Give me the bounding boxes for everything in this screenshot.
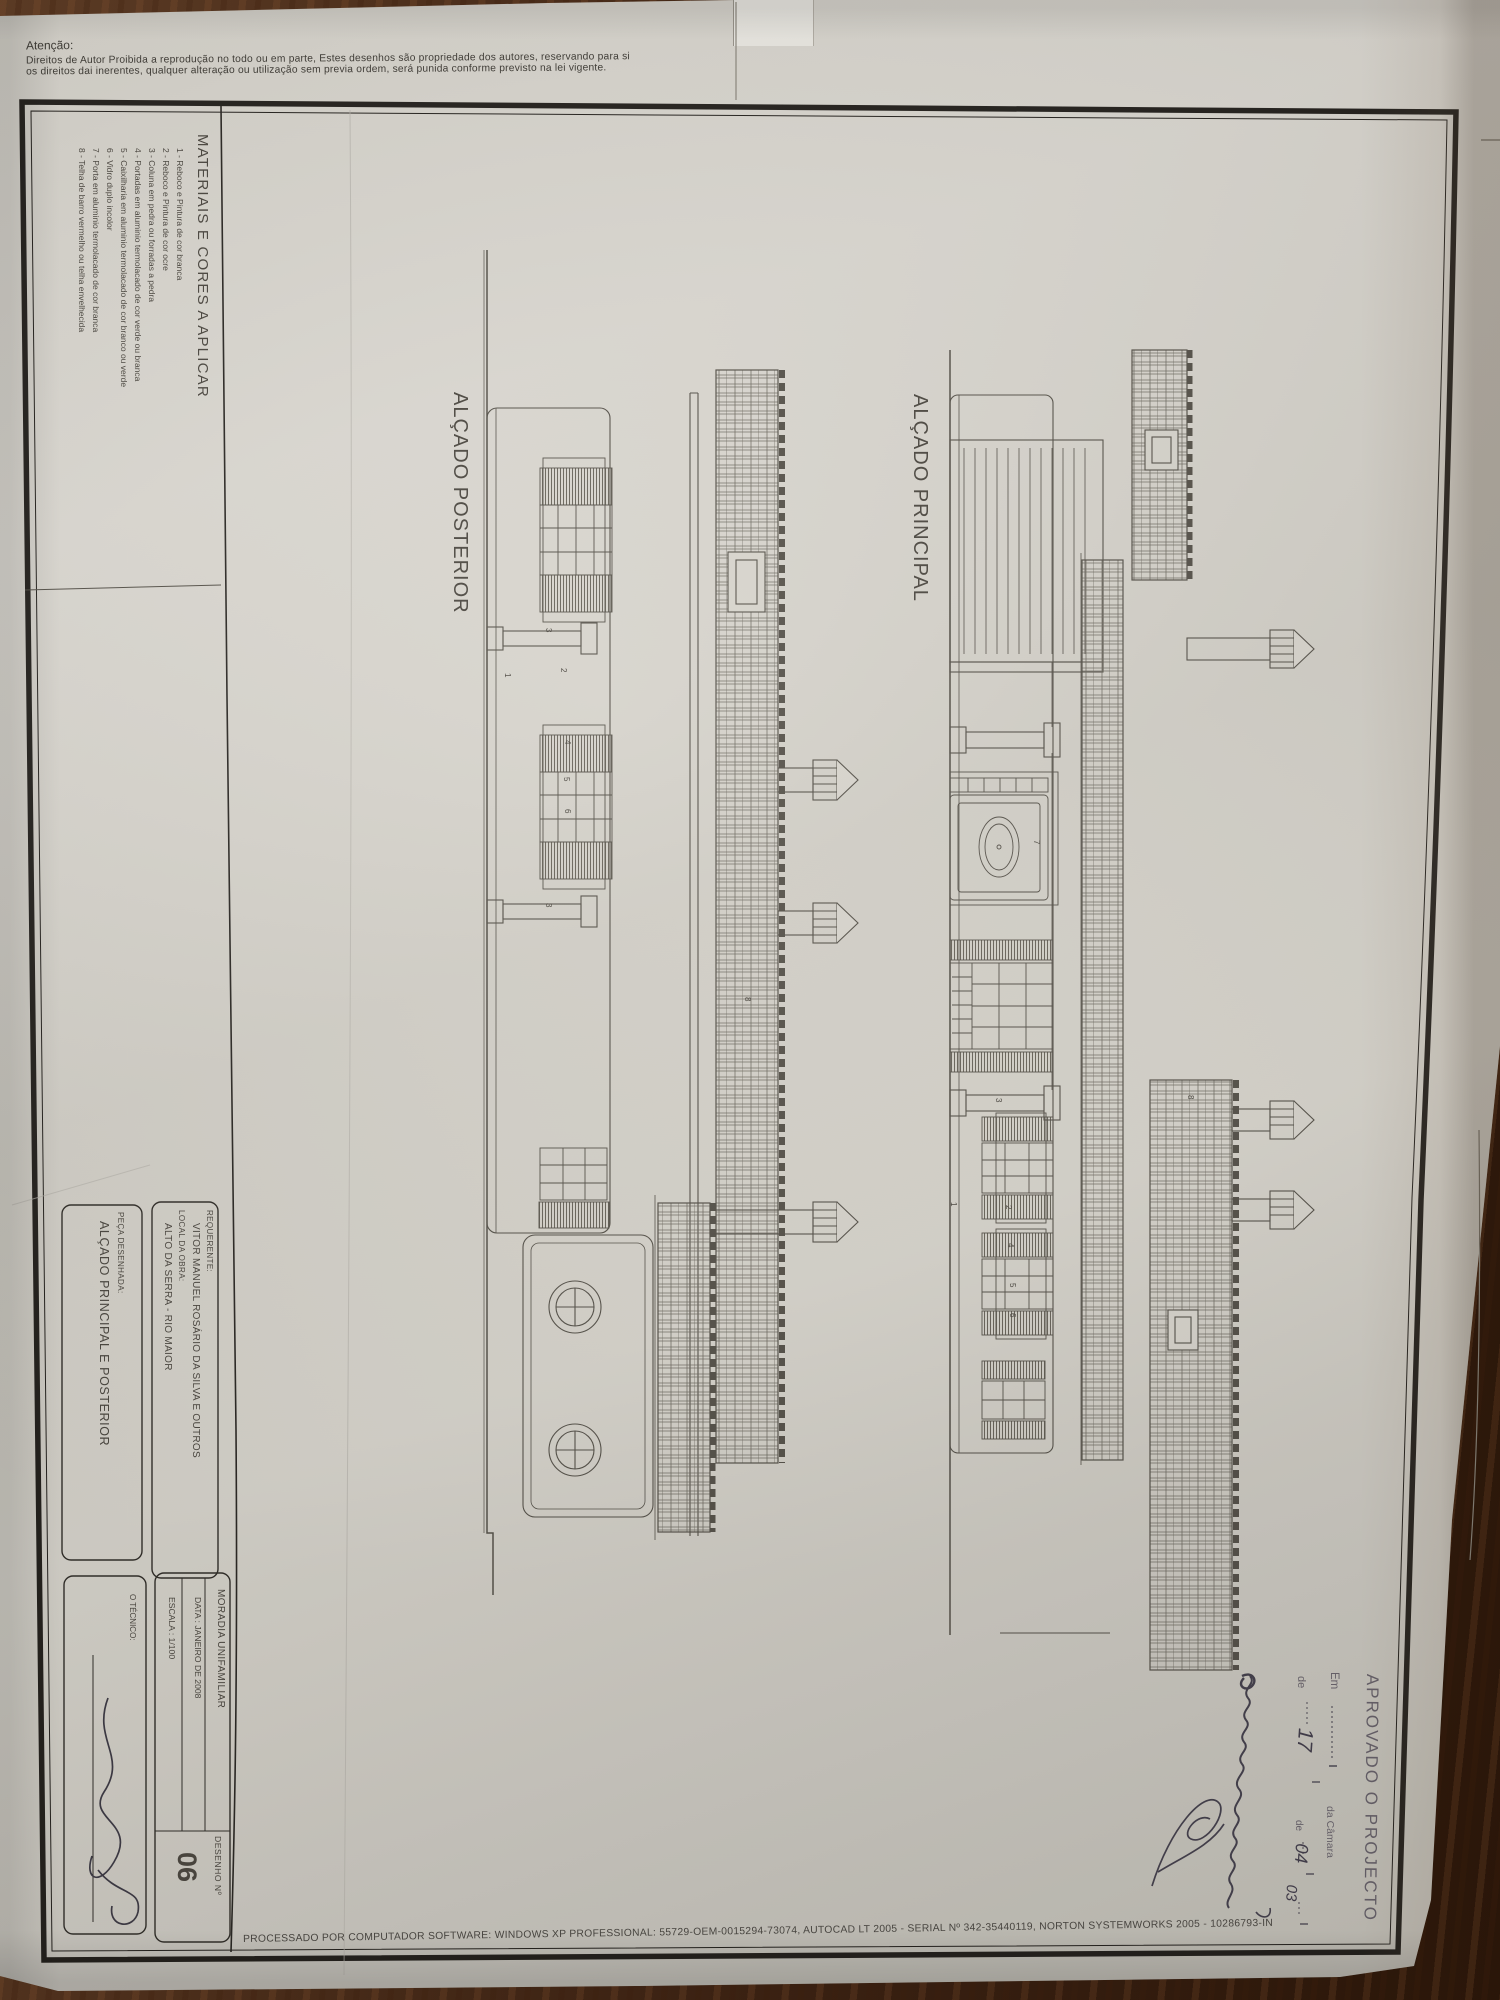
materials-item: 5 - Caixilharia em aluminio termolacado …: [117, 148, 131, 500]
callout: 4: [562, 740, 572, 752]
requerente-label: REQUERENTE:: [203, 1210, 215, 1572]
posterior-title: ALÇADO POSTERIOR: [437, 392, 471, 618]
materials-item: 2 - Reboco e Pintura de cor ocre: [159, 148, 173, 500]
stamp-year: 03: [1277, 1884, 1300, 1921]
titleblock-moradia: MORADIA UNIFAMILIAR: [208, 1589, 226, 1715]
local-value: ALTO DA SERRA - RIO MAIOR: [160, 1223, 175, 1572]
stamp-camara: da Câmara: [1322, 1806, 1336, 1880]
stamp-em: Em: [1325, 1672, 1340, 1704]
callout: 1: [948, 1202, 958, 1214]
titleblock-desenho-num: 06: [169, 1852, 202, 1902]
local-label: LOCAL DA OBRA:: [175, 1210, 188, 1572]
callout: 7: [1031, 840, 1041, 852]
requerente-value: VITOR MANUEL ROSÁRIO DA SILVA E OUTROS: [188, 1223, 203, 1572]
titleblock-data: DATA : JANEIRO DE 2008: [189, 1597, 203, 1719]
callout: 3: [543, 628, 553, 640]
materials-item: 3 - Coluna em pedra ou forradas a pedra: [145, 148, 159, 500]
peca-label: PEÇA DESENHADA:: [113, 1212, 127, 1512]
stamp-approved: APROVADO O PROJECTO: [1357, 1674, 1382, 1928]
stamp-day: 17: [1286, 1727, 1317, 1785]
approval-handwriting: [1152, 1675, 1337, 1924]
stamp-month: 04: [1285, 1843, 1312, 1886]
callout: 1: [502, 673, 512, 685]
materials-item: 6 - Vidro duplo incolor: [103, 148, 117, 500]
materials-legend: MATERIAIS E CORES A APLICAR 1 - Reboco e…: [55, 134, 211, 500]
materials-item: 4 - Portadas em aluminio termolacado de …: [131, 148, 145, 500]
peca-value: ALÇADO PRINCIPAL E POSTERIOR: [94, 1221, 113, 1512]
titleblock-desenho-label: DESENHO Nº: [210, 1836, 223, 1918]
callout: 3: [993, 1098, 1003, 1110]
callout: 3: [543, 903, 553, 915]
titleblock-escala: ESCALA : 1/100: [163, 1597, 177, 1689]
titleblock-requerente: REQUERENTE: VITOR MANUEL ROSÁRIO DA SILV…: [153, 1210, 215, 1572]
stamp-de2: de: [1291, 1820, 1304, 1844]
callout: 5: [561, 777, 571, 789]
principal-title: ALÇADO PRINCIPAL: [899, 394, 931, 620]
callout: 8: [1185, 1095, 1195, 1107]
materials-item: 8 - Telha de barro vermelho ou telha env…: [75, 148, 89, 500]
callout: 6: [562, 809, 572, 821]
callout: 2: [558, 668, 568, 680]
technician-signature: [90, 1698, 139, 1924]
callout: 4: [1005, 1243, 1015, 1255]
callout: 5: [1007, 1283, 1017, 1295]
materials-item: 7 - Porta em aluminio termolacado de cor…: [89, 148, 103, 500]
callout: 6: [1007, 1313, 1017, 1325]
callout: 2: [1003, 1205, 1013, 1217]
callout: 8: [742, 997, 752, 1009]
materials-title: MATERIAIS E CORES A APLICAR: [194, 134, 211, 500]
photo-of-architectural-drawing: Atenção: Direitos de Autor Proibida a re…: [0, 0, 1500, 2000]
copyright-notice: Atenção: Direitos de Autor Proibida a re…: [26, 34, 726, 78]
titleblock-tecnico-label: O TÉCNICO:: [125, 1594, 137, 1656]
titleblock-peca: PEÇA DESENHADA: ALÇADO PRINCIPAL E POSTE…: [79, 1212, 127, 1512]
stamp-de1: de: [1293, 1676, 1307, 1702]
materials-item: 1 - Reboco e Pintura de cor branca: [173, 148, 187, 500]
